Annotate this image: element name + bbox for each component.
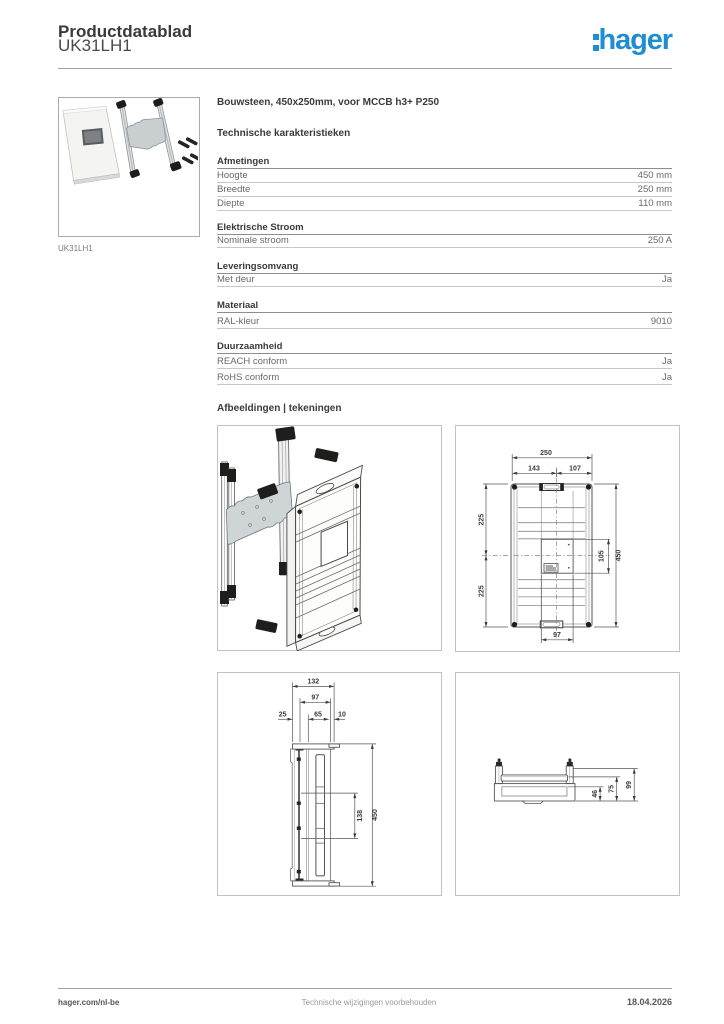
svg-text:450: 450 <box>616 550 623 562</box>
svg-text:25: 25 <box>279 711 287 718</box>
svg-text:97: 97 <box>553 632 561 639</box>
svg-text:250: 250 <box>540 450 552 457</box>
svg-text:132: 132 <box>307 679 319 686</box>
svg-text:138: 138 <box>357 810 364 822</box>
svg-text:225: 225 <box>479 514 486 526</box>
svg-text:10: 10 <box>338 711 346 718</box>
svg-text:97: 97 <box>311 694 319 701</box>
svg-text:105: 105 <box>599 550 606 562</box>
svg-text:107: 107 <box>569 466 581 473</box>
svg-text:143: 143 <box>528 466 540 473</box>
svg-text:46: 46 <box>592 790 599 798</box>
svg-text:225: 225 <box>479 585 486 597</box>
svg-text:75: 75 <box>609 785 616 793</box>
svg-text:99: 99 <box>626 781 633 789</box>
svg-text:65: 65 <box>314 711 322 718</box>
svg-text:450: 450 <box>372 809 379 821</box>
